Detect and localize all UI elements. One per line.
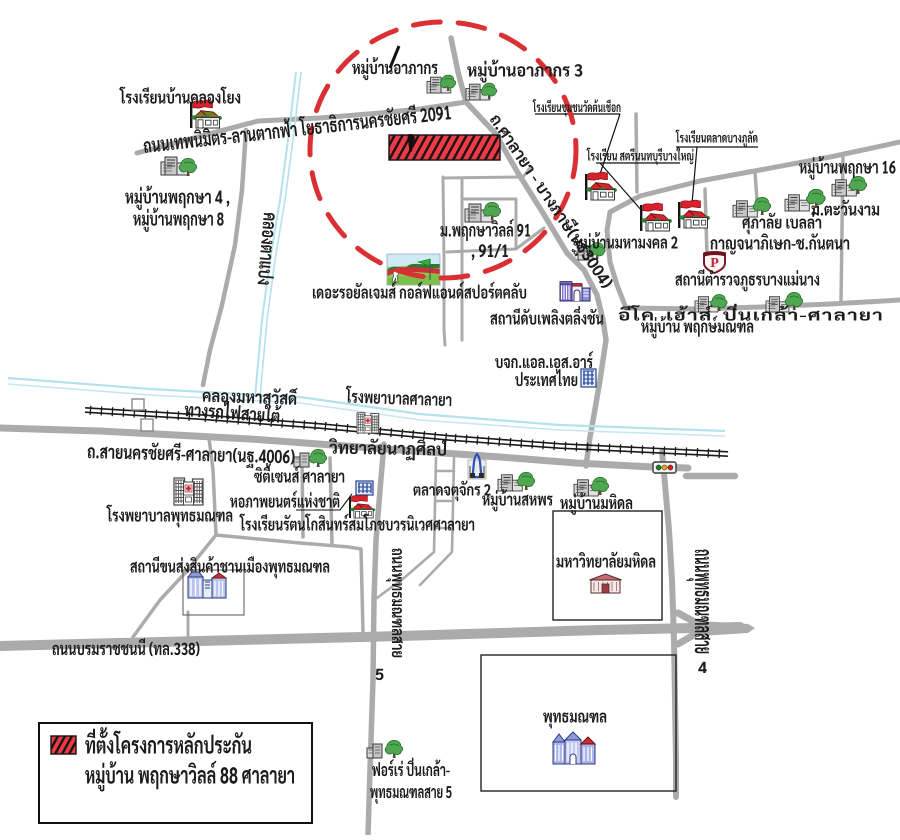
svg-text:P: P xyxy=(710,256,719,271)
